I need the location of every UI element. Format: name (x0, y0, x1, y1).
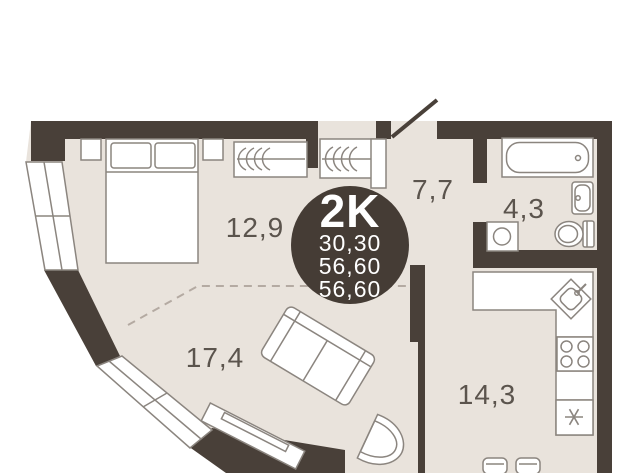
wall-bath-left-upper (473, 139, 487, 183)
fridge-icon (556, 400, 593, 435)
wall-top-left (31, 121, 318, 139)
nightstand-right (203, 139, 223, 160)
wall-top-right (437, 121, 612, 139)
stove-icon (557, 337, 593, 371)
bed (106, 139, 198, 263)
room-label-bathroom: 4,3 (503, 193, 545, 224)
wall-divider-thin (418, 342, 425, 473)
wall-bath-bottom (473, 250, 597, 268)
stool (483, 458, 507, 473)
floor-plan: 2K 30,30 56,60 56,60 12,9 7,7 4,3 17,4 1… (0, 0, 640, 473)
pillow (155, 143, 195, 168)
room-label-kitchen: 14,3 (458, 379, 517, 410)
wall-bath-left-lower (473, 222, 487, 252)
room-label-hallway: 7,7 (412, 174, 454, 205)
wall-divider-thick (410, 265, 425, 342)
floor-plan-canvas: 2K 30,30 56,60 56,60 12,9 7,7 4,3 17,4 1… (0, 0, 640, 473)
room-label-bedroom: 12,9 (226, 212, 285, 243)
wall-right (597, 121, 612, 473)
wall-door-jamb (376, 121, 391, 139)
stool (516, 458, 540, 473)
washing-machine (487, 222, 518, 251)
bathroom-sink (572, 182, 593, 214)
pillow (111, 143, 151, 168)
wardrobe-left (234, 142, 307, 177)
room-label-living: 17,4 (186, 342, 245, 373)
bathtub (502, 138, 593, 177)
toilet (555, 221, 594, 247)
badge-area-3: 56,60 (319, 276, 382, 302)
closet-side-panel (371, 139, 386, 188)
wall-closet-stub (306, 139, 318, 168)
wall-corner-block (31, 121, 65, 161)
nightstand-left (81, 139, 101, 160)
